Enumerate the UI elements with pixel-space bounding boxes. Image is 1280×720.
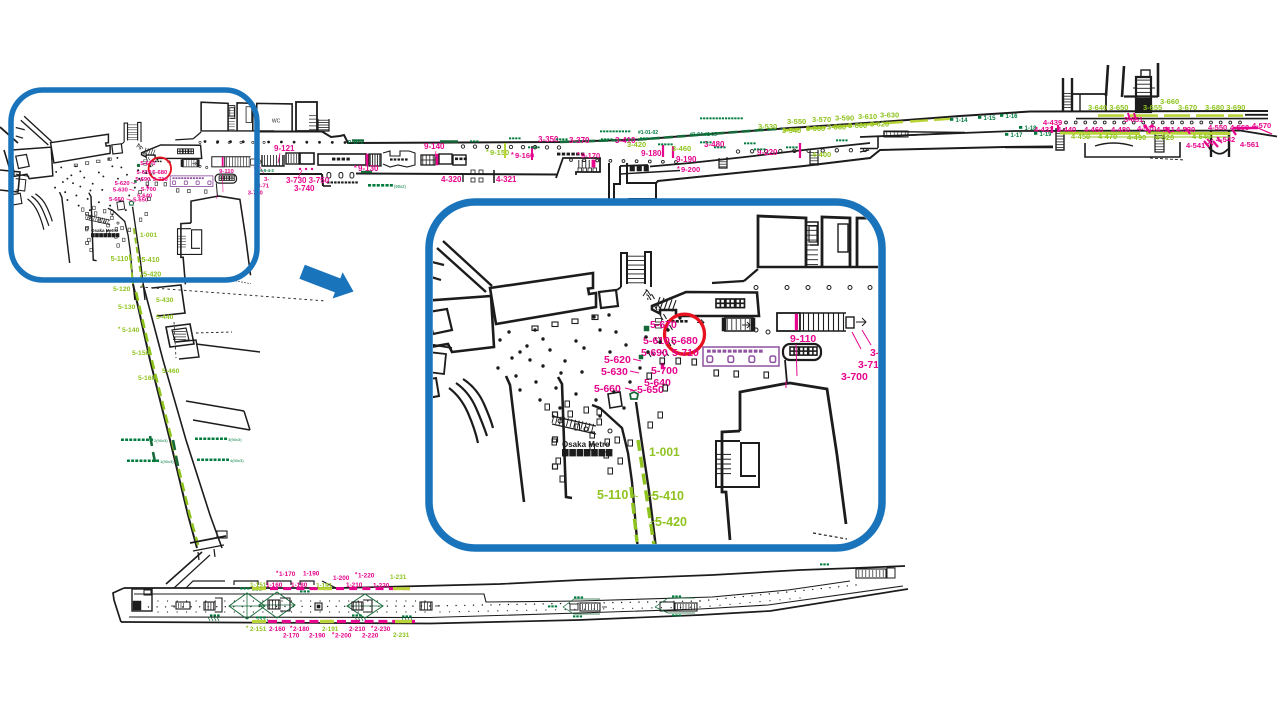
svg-text:1-191: 1-191 <box>316 583 333 590</box>
svg-text:1-151: 1-151 <box>250 582 267 589</box>
svg-text:#1-04 #1-05: #1-04 #1-05 <box>690 132 717 138</box>
svg-text:9-200: 9-200 <box>681 165 700 174</box>
svg-text:3-670: 3-670 <box>1178 103 1197 112</box>
svg-text:3-620: 3-620 <box>870 120 889 129</box>
svg-text:*: * <box>577 152 580 159</box>
svg-text:1-210: 1-210 <box>346 582 363 589</box>
svg-text:3-560: 3-560 <box>806 124 825 133</box>
svg-text:1-170: 1-170 <box>279 571 296 578</box>
svg-text:5-130: 5-130 <box>118 304 136 311</box>
svg-text:P-1P-2: P-1P-2 <box>348 140 364 146</box>
svg-text:*: * <box>118 327 121 333</box>
svg-text:*: * <box>354 165 357 172</box>
svg-text:1(90x3): 1(90x3) <box>160 459 174 464</box>
svg-text:*: * <box>486 149 489 156</box>
svg-text:4-550: 4-550 <box>1208 123 1227 132</box>
svg-text:3-660: 3-660 <box>1160 97 1179 106</box>
svg-text:4-490: 4-490 <box>1127 133 1146 142</box>
svg-text:1-190: 1-190 <box>303 571 320 578</box>
svg-text:(90x2): (90x2) <box>394 184 406 189</box>
svg-text:3(90x3): 3(90x3) <box>228 437 242 442</box>
svg-text:4-450: 4-450 <box>1071 132 1090 141</box>
svg-text:2-220: 2-220 <box>362 633 379 640</box>
svg-text:1-231: 1-231 <box>390 574 407 581</box>
svg-text:1-17: 1-17 <box>1011 133 1024 139</box>
svg-text:9-190: 9-190 <box>676 155 697 164</box>
svg-text:2-170: 2-170 <box>283 633 300 640</box>
svg-text:4(90x3): 4(90x3) <box>230 458 244 463</box>
svg-text:3-640 3-650: 3-640 3-650 <box>1088 103 1128 112</box>
svg-text:9-180: 9-180 <box>641 149 662 158</box>
svg-text:4-470: 4-470 <box>1098 132 1117 141</box>
svg-text:5-460: 5-460 <box>162 368 180 375</box>
svg-text:1-220: 1-220 <box>358 573 375 580</box>
svg-text:4-520: 4-520 <box>1155 133 1174 142</box>
svg-text:2(90x3): 2(90x3) <box>154 438 168 443</box>
svg-text:3-680 3-690: 3-680 3-690 <box>1205 103 1245 112</box>
svg-text:2-190: 2-190 <box>309 633 326 640</box>
svg-text:*: * <box>246 626 249 632</box>
svg-text:2-200: 2-200 <box>335 633 352 640</box>
svg-text:1-160: 1-160 <box>266 582 283 589</box>
svg-text:3-740: 3-740 <box>294 184 315 193</box>
svg-text:5-150: 5-150 <box>132 350 150 357</box>
svg-text:#1-01-02: #1-01-02 <box>638 130 658 136</box>
svg-text:1-15: 1-15 <box>984 116 997 122</box>
svg-text:9-220: 9-220 <box>757 148 778 157</box>
svg-text:3-370: 3-370 <box>569 136 590 145</box>
svg-text:2-231: 2-231 <box>393 632 410 639</box>
svg-text:4-561: 4-561 <box>1240 140 1259 149</box>
svg-text:3-651: 3-651 <box>1124 115 1143 124</box>
svg-text:3-600: 3-600 <box>848 121 867 130</box>
svg-text:1-14: 1-14 <box>956 118 969 124</box>
svg-text:1-200: 1-200 <box>333 575 350 582</box>
svg-text:1-230: 1-230 <box>373 583 390 590</box>
svg-text:9-121: 9-121 <box>274 144 295 153</box>
svg-text:4-320: 4-320 <box>441 175 462 184</box>
svg-text:1-16: 1-16 <box>1006 114 1019 120</box>
svg-text:*: * <box>511 152 514 159</box>
svg-text:*: * <box>677 166 680 173</box>
svg-text:5-440: 5-440 <box>156 314 174 321</box>
svg-text:3-580: 3-580 <box>827 123 846 132</box>
svg-text:5-430: 5-430 <box>156 297 174 304</box>
svg-text:5-140: 5-140 <box>122 327 140 334</box>
svg-text:3-530: 3-530 <box>758 122 777 131</box>
svg-text:3-420: 3-420 <box>627 140 646 149</box>
svg-text:3-540: 3-540 <box>782 126 801 135</box>
svg-text:3-630: 3-630 <box>880 111 899 120</box>
svg-text:5-120: 5-120 <box>113 286 131 293</box>
svg-text:1-180: 1-180 <box>291 582 308 589</box>
svg-text:4-400: 4-400 <box>812 150 831 159</box>
svg-text:5-160: 5-160 <box>138 375 156 382</box>
svg-text:3-460: 3-460 <box>672 144 691 153</box>
svg-text:3-550: 3-550 <box>787 117 806 126</box>
svg-text:4-541: 4-541 <box>1186 141 1205 150</box>
svg-text:9-150: 9-150 <box>490 148 509 157</box>
svg-text:9-170: 9-170 <box>581 151 600 160</box>
svg-text:2-151: 2-151 <box>250 626 267 633</box>
svg-text:2-230: 2-230 <box>374 626 391 633</box>
svg-text:2-180: 2-180 <box>293 626 310 633</box>
svg-text:4-431: 4-431 <box>1034 125 1053 134</box>
svg-text:4-321: 4-321 <box>496 175 517 184</box>
svg-text:9-140: 9-140 <box>424 142 445 151</box>
svg-text:3-350: 3-350 <box>538 135 559 144</box>
